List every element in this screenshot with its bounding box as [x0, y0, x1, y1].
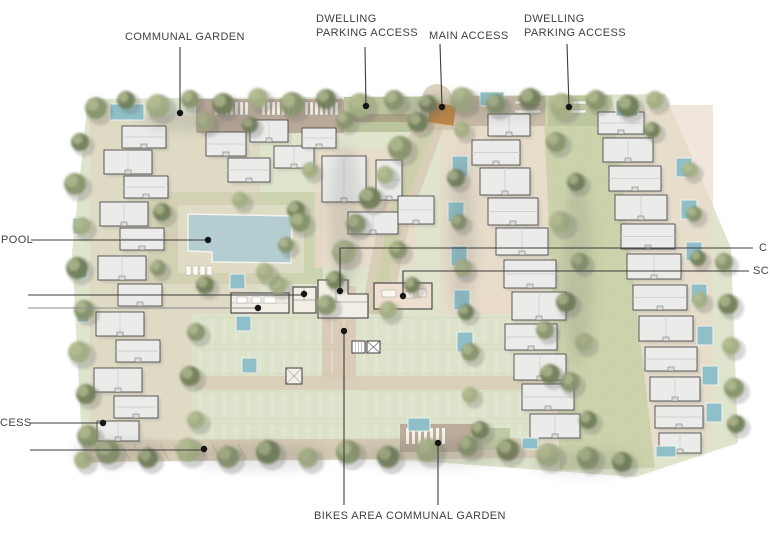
shade-blob [72, 440, 168, 464]
building [615, 195, 670, 223]
building [228, 158, 273, 185]
building [650, 377, 703, 404]
building [639, 316, 696, 344]
label-line: DWELLING [524, 12, 626, 26]
bike-shelter [367, 341, 380, 353]
building [480, 168, 533, 198]
building [104, 150, 155, 177]
building [472, 140, 523, 168]
shade-blob [190, 442, 330, 470]
building [94, 368, 145, 395]
shade-blob [140, 108, 260, 132]
plunge-pool [697, 326, 713, 345]
label-pool: POOL [1, 233, 33, 247]
plunge-pool [522, 438, 538, 449]
shade-blob [530, 450, 640, 474]
shade-blob [563, 175, 593, 365]
building [488, 198, 541, 228]
building [645, 347, 700, 374]
label-dwelling-parking-access-1: DWELLING PARKING ACCESS [316, 12, 418, 40]
building [496, 228, 551, 258]
label-access-cut: CESS [0, 416, 32, 430]
label-communal-garden-bottom: COMMUNAL GARDEN [386, 509, 506, 523]
plunge-pool [236, 316, 251, 331]
building [100, 202, 151, 229]
building [603, 138, 656, 165]
building [114, 396, 161, 421]
shade-blob [400, 96, 540, 120]
label-line: PARKING ACCESS [524, 26, 626, 40]
plunge-pool [230, 274, 245, 289]
building [627, 254, 684, 282]
plunge-pool [242, 358, 257, 373]
shade-blob [449, 155, 475, 315]
building [302, 128, 339, 151]
building [609, 166, 664, 194]
bike-shelter [352, 341, 365, 353]
label-dwelling-parking-access-2: DWELLING PARKING ACCESS [524, 12, 626, 40]
building [504, 260, 559, 291]
plunge-pool [656, 446, 676, 457]
site-plan-canvas: COMMUNAL GARDEN DWELLING PARKING ACCESS … [0, 0, 770, 535]
label-communal-garden-top: COMMUNAL GARDEN [125, 30, 245, 44]
plunge-pool [706, 403, 722, 422]
building [633, 285, 690, 313]
label-right-top-cut: C [759, 241, 767, 255]
building [122, 126, 169, 151]
building [530, 414, 583, 441]
shade-blob [350, 441, 510, 467]
building [96, 312, 147, 339]
shade-blob [329, 145, 361, 285]
label-right-bottom-cut: SC [753, 264, 769, 278]
building [655, 406, 706, 431]
building [118, 284, 165, 309]
building [398, 196, 437, 227]
kiosk-plan [286, 368, 302, 384]
site-plan-illustration [0, 0, 770, 535]
label-main-access: MAIN ACCESS [429, 29, 509, 43]
plunge-pool [408, 418, 430, 431]
label-line: DWELLING [316, 12, 418, 26]
building [621, 224, 678, 252]
building [98, 256, 149, 283]
label-bikes-area: BIKES AREA [314, 509, 383, 523]
label-line: PARKING ACCESS [316, 26, 418, 40]
building [116, 340, 163, 365]
plunge-pool [702, 366, 718, 385]
building [124, 176, 171, 201]
